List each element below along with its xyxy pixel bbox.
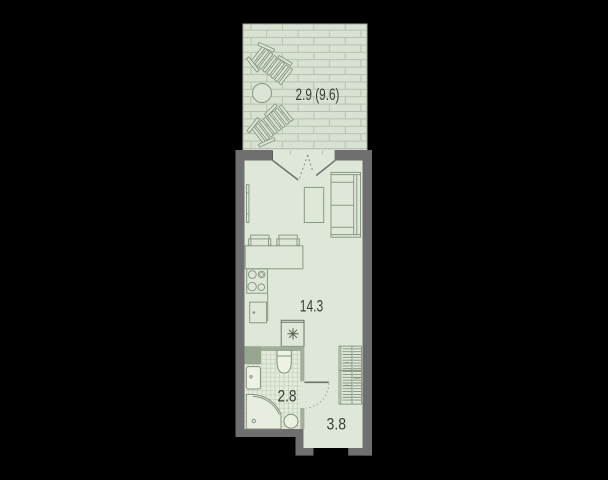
svg-text:3.8: 3.8 (327, 415, 347, 433)
svg-text:2.8: 2.8 (278, 387, 297, 405)
svg-text:14.3: 14.3 (300, 297, 324, 315)
svg-text:2.9 (9.6): 2.9 (9.6) (296, 86, 340, 104)
